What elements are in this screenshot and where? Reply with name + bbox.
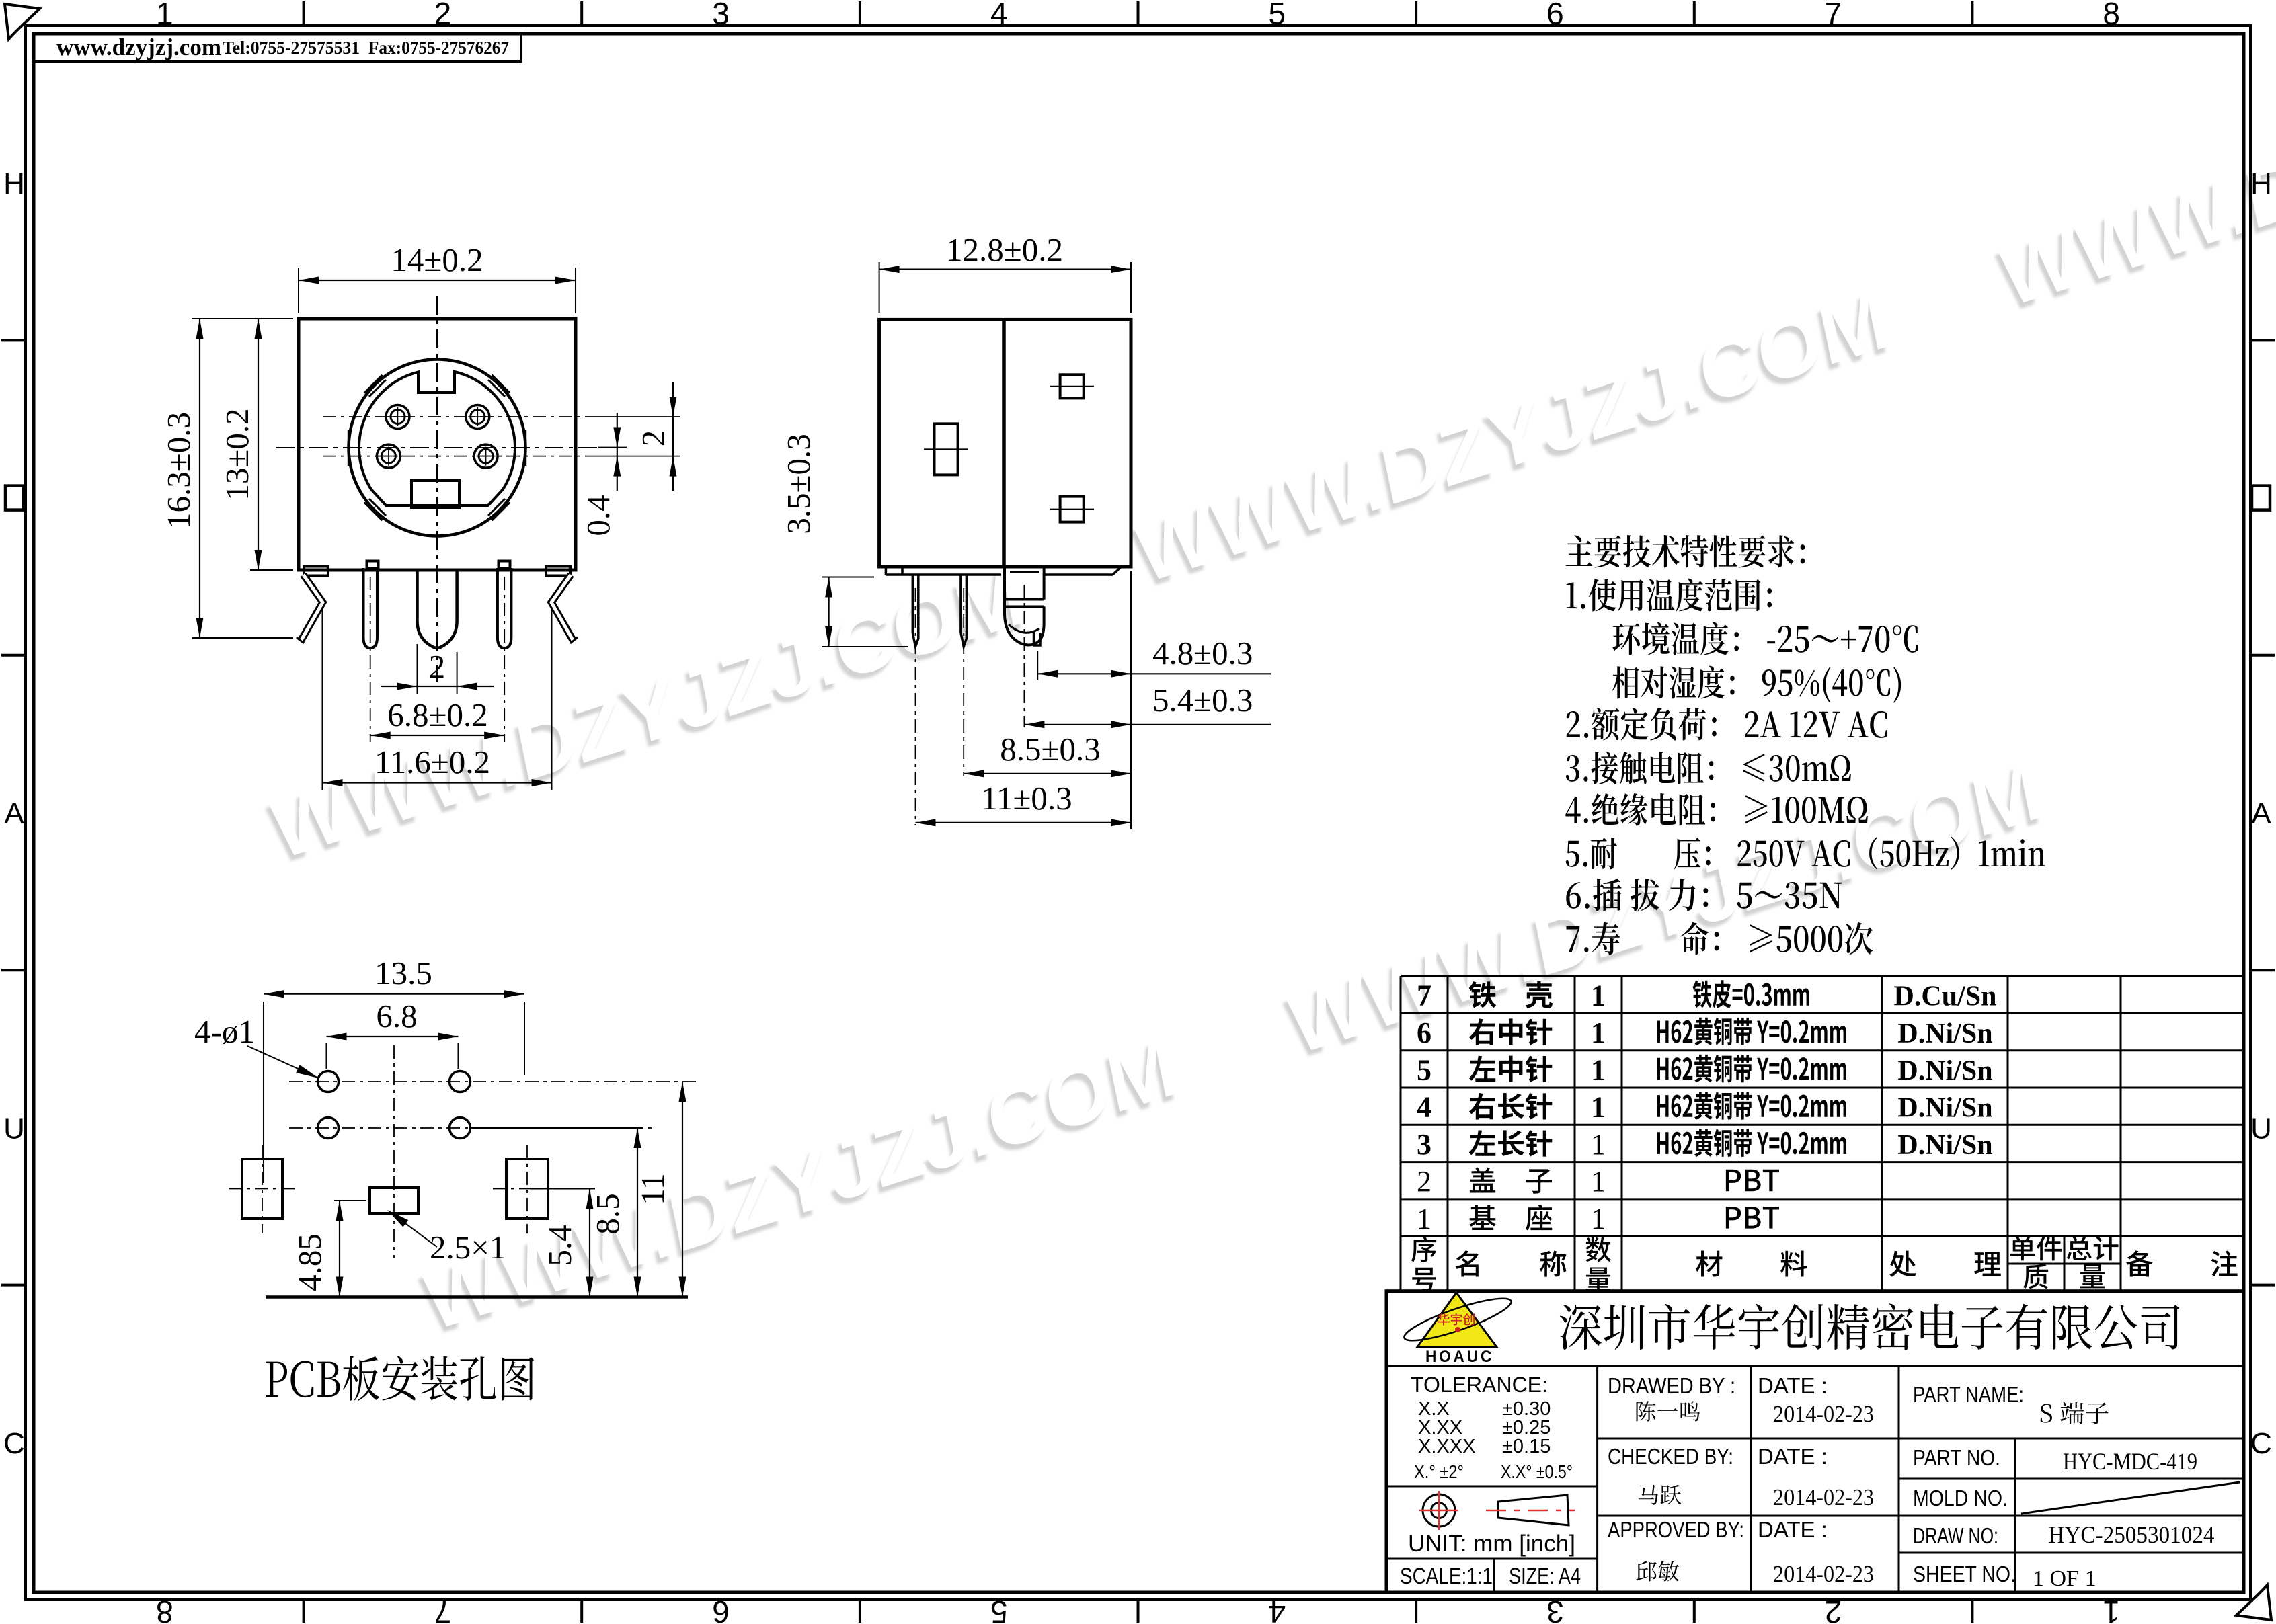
svg-text:1 OF 1: 1 OF 1: [2033, 1566, 2096, 1591]
svg-text:DATE :: DATE :: [1758, 1373, 1828, 1398]
svg-text:D.Ni/Sn: D.Ni/Sn: [1897, 1055, 1992, 1086]
svg-text:4: 4: [990, 0, 1008, 31]
svg-text:2: 2: [635, 430, 672, 447]
svg-text:1: 1: [2103, 1594, 2120, 1624]
svg-text:HYC-MDC-419: HYC-MDC-419: [2063, 1448, 2197, 1475]
svg-text:3: 3: [712, 0, 730, 31]
svg-text:3: 3: [1546, 1594, 1564, 1624]
svg-text:PART NO.: PART NO.: [1913, 1445, 2000, 1470]
svg-text:H: H: [3, 167, 25, 200]
svg-text:A: A: [4, 797, 24, 830]
svg-text:2: 2: [429, 648, 446, 685]
svg-text:MOLD NO.: MOLD NO.: [1913, 1486, 2008, 1510]
svg-text:5.4±0.3: 5.4±0.3: [1152, 682, 1253, 719]
svg-text:DATE :: DATE :: [1758, 1444, 1828, 1469]
svg-text:D.Ni/Sn: D.Ni/Sn: [1897, 1093, 1992, 1124]
svg-text:5: 5: [1269, 0, 1286, 31]
svg-text:14±0.2: 14±0.2: [391, 241, 483, 278]
svg-text:www.dzyjzj.com: www.dzyjzj.com: [56, 34, 221, 60]
svg-text:5.4: 5.4: [541, 1225, 578, 1266]
svg-text:C: C: [3, 1427, 25, 1460]
svg-text:11: 11: [634, 1173, 671, 1205]
svg-text:2014-02-23: 2014-02-23: [1773, 1561, 1874, 1587]
svg-text:13.5: 13.5: [375, 955, 432, 991]
svg-text:1: 1: [1591, 1165, 1606, 1198]
svg-text:6.8: 6.8: [376, 998, 417, 1034]
svg-text:8.5: 8.5: [589, 1193, 626, 1234]
svg-text:SIZE: A4: SIZE: A4: [1509, 1564, 1581, 1589]
svg-text:3.5±0.3: 3.5±0.3: [780, 434, 817, 534]
svg-text:1: 1: [1591, 1016, 1606, 1049]
svg-text:6: 6: [1417, 1016, 1431, 1049]
svg-text:DRAWED BY :: DRAWED BY :: [1608, 1373, 1735, 1398]
svg-text:DATE :: DATE :: [1758, 1517, 1828, 1542]
svg-text:TOLERANCE:: TOLERANCE:: [1411, 1373, 1548, 1397]
svg-text:±0.15: ±0.15: [1502, 1436, 1551, 1457]
svg-text:2: 2: [1825, 1594, 1842, 1624]
svg-text:4.8±0.3: 4.8±0.3: [1152, 635, 1253, 672]
svg-text:D.Cu/Sn: D.Cu/Sn: [1894, 981, 1997, 1012]
svg-text:APPROVED BY:: APPROVED BY:: [1608, 1517, 1744, 1542]
svg-text:16.3±0.3: 16.3±0.3: [160, 412, 197, 529]
svg-text:HOAUC: HOAUC: [1425, 1348, 1494, 1366]
svg-text:3: 3: [1417, 1128, 1431, 1161]
svg-text:5: 5: [990, 1594, 1008, 1624]
svg-text:1: 1: [1591, 1091, 1606, 1124]
svg-text:7: 7: [1417, 979, 1431, 1012]
svg-text:1: 1: [1417, 1203, 1431, 1235]
svg-text:4: 4: [1269, 1594, 1286, 1624]
svg-text:UNIT: mm [inch]: UNIT: mm [inch]: [1408, 1531, 1575, 1557]
svg-text:8: 8: [2103, 0, 2120, 31]
svg-text:X.XXX: X.XXX: [1418, 1436, 1475, 1457]
svg-text:0.4: 0.4: [580, 495, 617, 536]
svg-text:4-ø1: 4-ø1: [194, 1013, 255, 1050]
svg-text:Fax:0755-27576267: Fax:0755-27576267: [368, 38, 509, 58]
svg-text:13±0.2: 13±0.2: [219, 408, 256, 500]
svg-text:DRAW NO:: DRAW NO:: [1913, 1523, 1998, 1548]
svg-text:X.° ±2°: X.° ±2°: [1414, 1461, 1464, 1482]
svg-text:4: 4: [1417, 1091, 1431, 1124]
svg-text:X.X° ±0.5°: X.X° ±0.5°: [1501, 1461, 1573, 1482]
svg-text:8: 8: [156, 1594, 173, 1624]
svg-text:2014-02-23: 2014-02-23: [1773, 1401, 1874, 1427]
svg-text:4.85: 4.85: [291, 1233, 328, 1291]
svg-text:D.Ni/Sn: D.Ni/Sn: [1897, 1130, 1992, 1161]
svg-text:7: 7: [1825, 0, 1842, 31]
svg-text:1: 1: [1591, 1128, 1606, 1161]
svg-text:2: 2: [1417, 1165, 1431, 1198]
svg-text:6.8±0.2: 6.8±0.2: [387, 696, 487, 733]
svg-text:2014-02-23: 2014-02-23: [1773, 1484, 1874, 1510]
svg-text:11±0.3: 11±0.3: [981, 780, 1072, 817]
svg-text:6: 6: [712, 1594, 730, 1624]
svg-text:SCALE:1:1: SCALE:1:1: [1400, 1564, 1493, 1589]
svg-text:1: 1: [1591, 979, 1606, 1012]
svg-text:5: 5: [1417, 1053, 1431, 1086]
svg-text:U: U: [2250, 1112, 2272, 1145]
svg-text:WWW.DZYJZJ.COM: WWW.DZYJZJ.COM: [417, 1017, 1185, 1349]
svg-text:A: A: [2251, 797, 2271, 830]
svg-text:12.8±0.2: 12.8±0.2: [946, 231, 1063, 268]
svg-text:2: 2: [434, 0, 452, 31]
svg-text:HYC-2505301024: HYC-2505301024: [2049, 1521, 2215, 1548]
svg-text:7: 7: [434, 1594, 452, 1624]
svg-text:1: 1: [156, 0, 173, 31]
svg-text:U: U: [3, 1112, 25, 1145]
svg-text:WWW.DZYJZJ.COM: WWW.DZYJZJ.COM: [264, 546, 1032, 878]
svg-text:C: C: [2250, 1427, 2272, 1460]
svg-text:8.5±0.3: 8.5±0.3: [1000, 731, 1100, 768]
svg-text:6: 6: [1546, 0, 1564, 31]
svg-text:H: H: [2250, 167, 2272, 200]
svg-text:11.6±0.2: 11.6±0.2: [375, 743, 490, 780]
svg-text:CHECKED BY:: CHECKED BY:: [1608, 1444, 1733, 1469]
svg-text:1: 1: [1591, 1203, 1606, 1235]
svg-text:D.Ni/Sn: D.Ni/Sn: [1897, 1018, 1992, 1049]
svg-text:Tel:0755-27575531: Tel:0755-27575531: [223, 38, 360, 58]
svg-text:PART NAME:: PART NAME:: [1913, 1382, 2024, 1407]
svg-text:1: 1: [1591, 1053, 1606, 1086]
svg-text:WWW.DZYJZJ.COM: WWW.DZYJZJ.COM: [1994, 0, 2276, 325]
svg-text:2.5×1: 2.5×1: [430, 1229, 506, 1266]
svg-text:SHEET NO.: SHEET NO.: [1913, 1561, 2016, 1586]
